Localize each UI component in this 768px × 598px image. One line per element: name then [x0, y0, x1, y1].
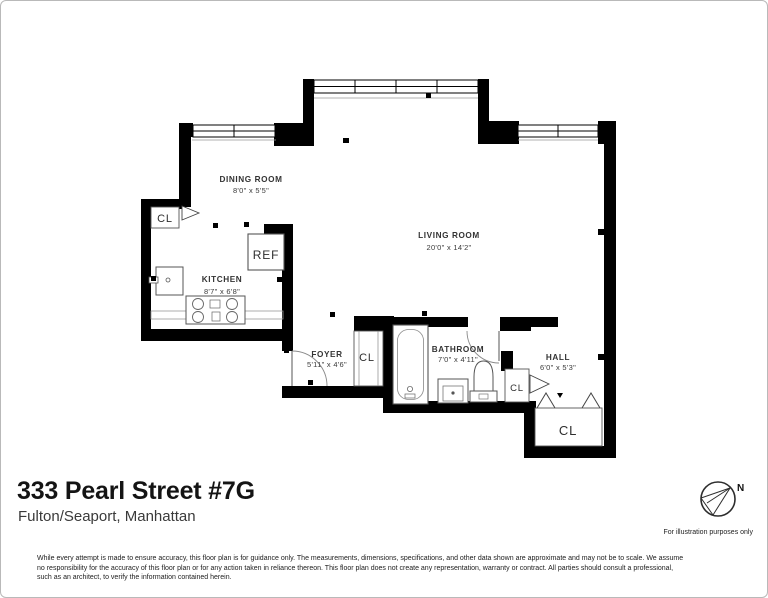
- bathroom-fixtures: [393, 325, 497, 404]
- dining-closet-door: [182, 206, 199, 220]
- bifold-closet-doors: [537, 393, 600, 408]
- dining-closet-label: CL: [157, 213, 173, 225]
- compass-north-label: N: [737, 483, 744, 494]
- bottom-closet-label: CL: [559, 423, 577, 438]
- dining-room-label: DINING ROOM: [219, 175, 282, 184]
- disclaimer-line-2: no responsibility for the accuracy of th…: [37, 564, 752, 574]
- disclaimer-line-1: While every attempt is made to ensure ac…: [37, 554, 752, 564]
- bathroom-label: BATHROOM: [432, 345, 484, 354]
- foyer-dims: 5'11" x 4'6": [307, 360, 347, 369]
- floor-plan-page: DINING ROOM 8'0" x 5'5" LIVING ROOM 20'0…: [0, 0, 768, 598]
- hall-dims: 6'0" x 5'3": [540, 363, 576, 372]
- window-living-right: [518, 125, 598, 140]
- windows: [192, 80, 598, 140]
- hall-closet-label: CL: [510, 383, 524, 394]
- bathtub: [393, 325, 428, 404]
- page-title: 333 Pearl Street #7G: [17, 477, 255, 506]
- hall-label: HALL: [546, 353, 570, 362]
- compass-icon: N: [701, 482, 744, 516]
- dining-room-dims: 8'0" x 5'5": [233, 186, 269, 195]
- page-subtitle: Fulton/Seaport, Manhattan: [18, 508, 196, 525]
- compass-note: For illustration purposes only: [553, 529, 753, 536]
- living-room-label: LIVING ROOM: [418, 231, 480, 240]
- foyer-label: FOYER: [311, 350, 342, 359]
- disclaimer-line-3: such as an architect, to verify the info…: [37, 573, 752, 583]
- disclaimer: While every attempt is made to ensure ac…: [37, 554, 752, 583]
- living-room-dims: 20'0" x 14'2": [426, 243, 471, 252]
- kitchen-label: KITCHEN: [202, 275, 243, 284]
- bathroom-sink: [438, 379, 468, 403]
- foyer-closet-label: CL: [359, 352, 375, 364]
- refrigerator-label: REF: [253, 248, 279, 262]
- hall-closet-door: [530, 375, 549, 393]
- stove: [186, 296, 245, 324]
- bathroom-dims: 7'0" x 4'11": [438, 355, 478, 364]
- window-living-top: [314, 80, 478, 98]
- toilet: [470, 361, 497, 402]
- window-dining: [192, 125, 276, 140]
- kitchen-dims: 8'7" x 6'8": [204, 287, 240, 296]
